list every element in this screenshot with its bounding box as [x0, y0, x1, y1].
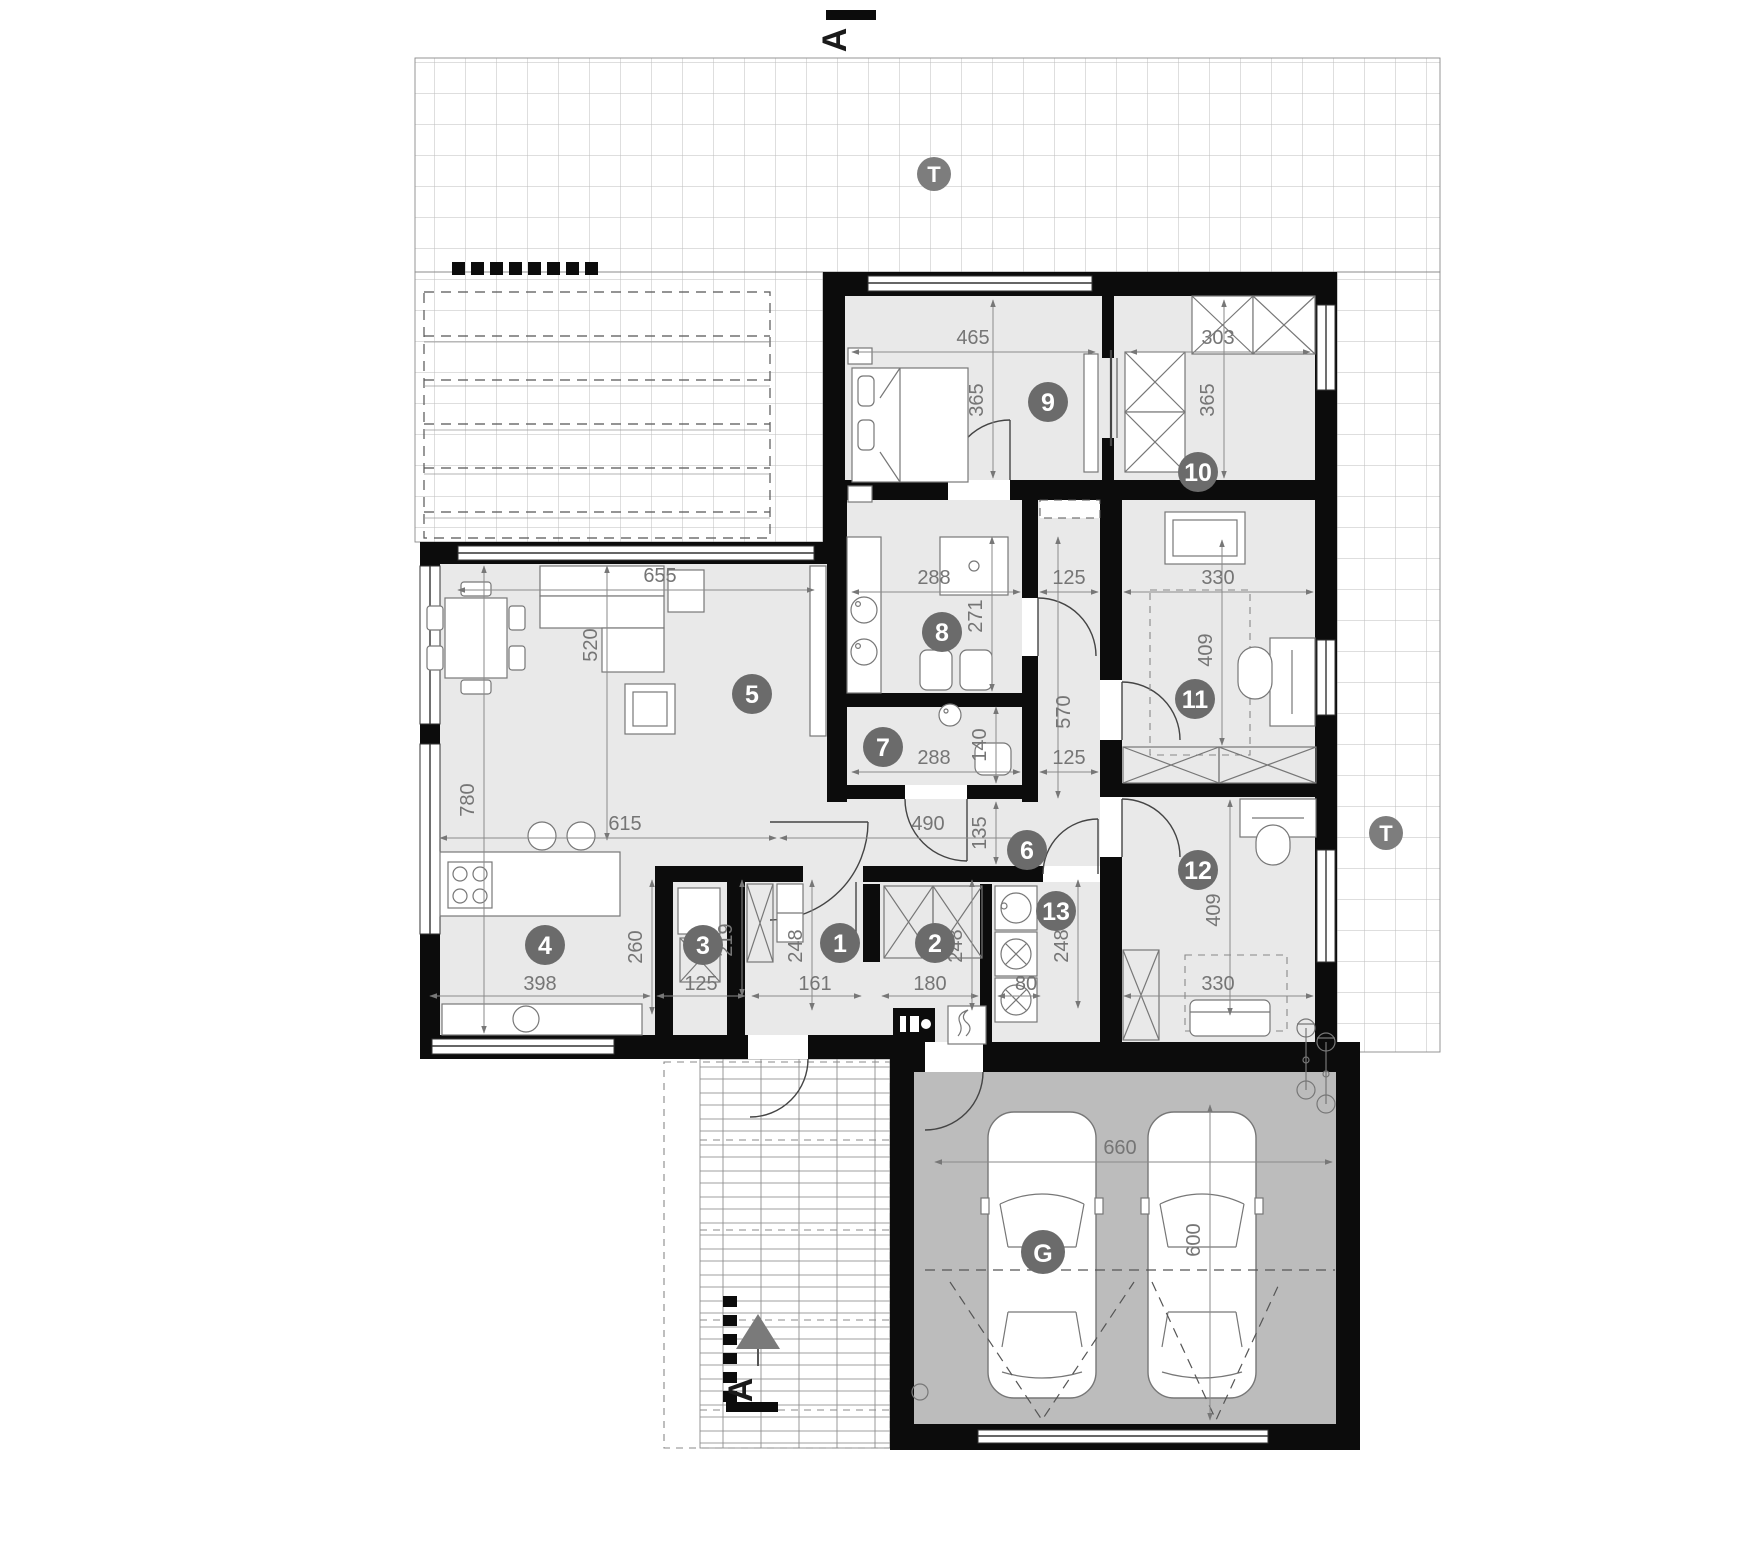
room-number-8: 8 [935, 619, 949, 647]
bar-stool [567, 822, 595, 850]
dim-label: 125 [684, 973, 717, 995]
dim-label: 180 [913, 973, 946, 995]
dim-label: 655 [643, 565, 676, 587]
dim-label: 80 [1015, 973, 1037, 995]
dim-label: 365 [966, 383, 988, 416]
floor-plan-sheet: 4653033653656552881253305202714095707802… [0, 0, 1745, 1558]
dim-label: 125 [1052, 567, 1085, 589]
garage-marker-letter: G [1033, 1240, 1052, 1268]
chair [1256, 825, 1290, 865]
toilet [920, 650, 952, 690]
room-number-6: 6 [1020, 837, 1034, 865]
dim-label: 161 [798, 973, 831, 995]
section-marker-top [826, 10, 876, 20]
room-number-12: 12 [1184, 857, 1212, 885]
dim-label: 271 [965, 599, 987, 632]
fireplace [948, 1006, 986, 1044]
room-number-1: 1 [833, 930, 847, 958]
bidet [960, 650, 992, 690]
room-number-4: 4 [538, 932, 552, 960]
room-number-9: 9 [1041, 389, 1055, 417]
dim-label: 365 [1197, 383, 1219, 416]
nightstand [848, 348, 872, 364]
kitchen-counter [442, 1004, 642, 1035]
garage-floor [914, 1072, 1336, 1424]
dim-label: 288 [917, 747, 950, 769]
dim-label: 409 [1195, 633, 1217, 666]
dim-label: 303 [1201, 327, 1234, 349]
washbasin [939, 704, 961, 726]
dim-label: 490 [911, 813, 944, 835]
dim-label: 600 [1183, 1223, 1205, 1256]
dim-label: 140 [969, 728, 991, 761]
utility-13 [995, 886, 1037, 1022]
tall-cabinet [810, 566, 826, 736]
dim-label: 330 [1201, 567, 1234, 589]
room-number-10: 10 [1184, 459, 1212, 487]
dim-label: 570 [1053, 695, 1075, 728]
dim-label: 409 [1203, 893, 1225, 926]
dim-label: 520 [580, 628, 602, 661]
dim-label: 260 [625, 930, 647, 963]
room-number-11: 11 [1182, 686, 1209, 714]
floor-plan-svg: 4653033653656552881253305202714095707802… [0, 0, 1745, 1558]
dim-label: 780 [457, 783, 479, 816]
chair [1238, 647, 1272, 699]
dim-label: 398 [523, 973, 556, 995]
pillow [858, 376, 874, 406]
room-number-13: 13 [1042, 898, 1070, 926]
section-letter-top: A [816, 28, 854, 53]
terrace-marker-letter: T [927, 162, 941, 187]
dim-label: 465 [956, 327, 989, 349]
nightstand [848, 486, 872, 502]
dim-label: 615 [608, 813, 641, 835]
pillow [858, 420, 874, 450]
room-number-7: 7 [876, 734, 890, 762]
room-number-5: 5 [745, 681, 759, 709]
dim-label: 135 [969, 816, 991, 849]
dim-label: 248 [1051, 929, 1073, 962]
dim-label: 248 [785, 929, 807, 962]
dim-label: 660 [1103, 1137, 1136, 1159]
bar-stool [528, 822, 556, 850]
sideboard [1084, 354, 1098, 472]
dim-label: 288 [917, 567, 950, 589]
dim-label: 125 [1052, 747, 1085, 769]
room-number-2: 2 [928, 930, 942, 958]
terrace-marker-letter: T [1379, 821, 1393, 846]
dim-label: 330 [1201, 973, 1234, 995]
section-letter-bottom: A [722, 1378, 760, 1403]
room-number-3: 3 [696, 932, 710, 960]
